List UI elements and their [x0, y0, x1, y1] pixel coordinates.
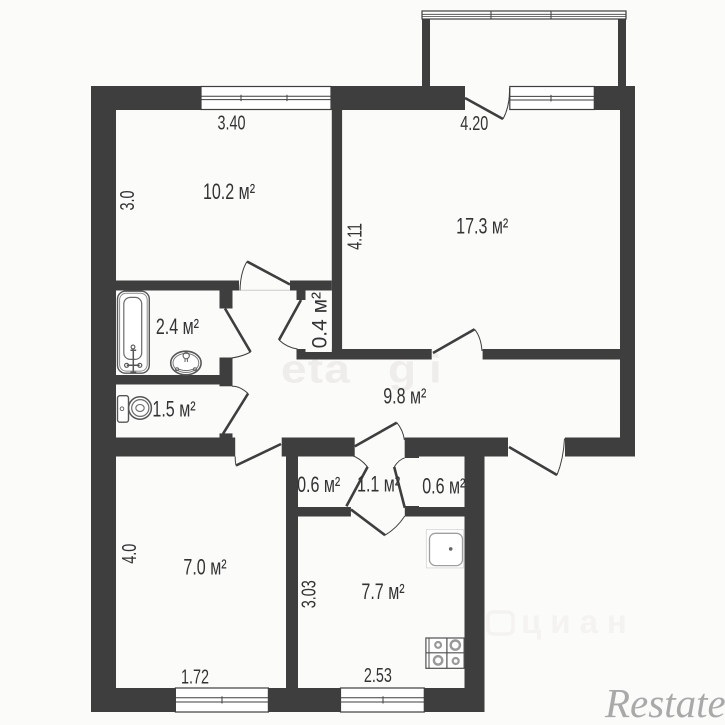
svg-text:1.1 м²: 1.1 м² [357, 473, 401, 497]
svg-text:3.40: 3.40 [217, 111, 245, 134]
svg-text:1.72: 1.72 [181, 665, 209, 688]
svg-text:7.7 м²: 7.7 м² [361, 581, 405, 605]
svg-text:3.0: 3.0 [116, 191, 139, 211]
svg-text:9.8 м²: 9.8 м² [383, 385, 427, 409]
svg-text:0.6 м²: 0.6 м² [297, 474, 341, 498]
svg-text:4.11: 4.11 [343, 223, 366, 250]
svg-text:2.53: 2.53 [364, 664, 392, 687]
svg-text:4.20: 4.20 [460, 112, 488, 135]
svg-text:0.6 м²: 0.6 м² [422, 475, 466, 499]
svg-text:7.0 м²: 7.0 м² [183, 556, 227, 580]
svg-text:1.5 м²: 1.5 м² [152, 398, 196, 422]
svg-text:17.3 м²: 17.3 м² [456, 215, 509, 239]
svg-text:Restate: Restate [604, 680, 725, 725]
svg-text:2.4 м²: 2.4 м² [156, 316, 200, 340]
svg-text:3.03: 3.03 [297, 580, 320, 608]
svg-text:0.4 м²: 0.4 м² [309, 292, 332, 348]
svg-text:4.0: 4.0 [118, 544, 141, 564]
svg-text:10.2 м²: 10.2 м² [203, 181, 256, 205]
svg-text:циан: циан [521, 603, 636, 640]
